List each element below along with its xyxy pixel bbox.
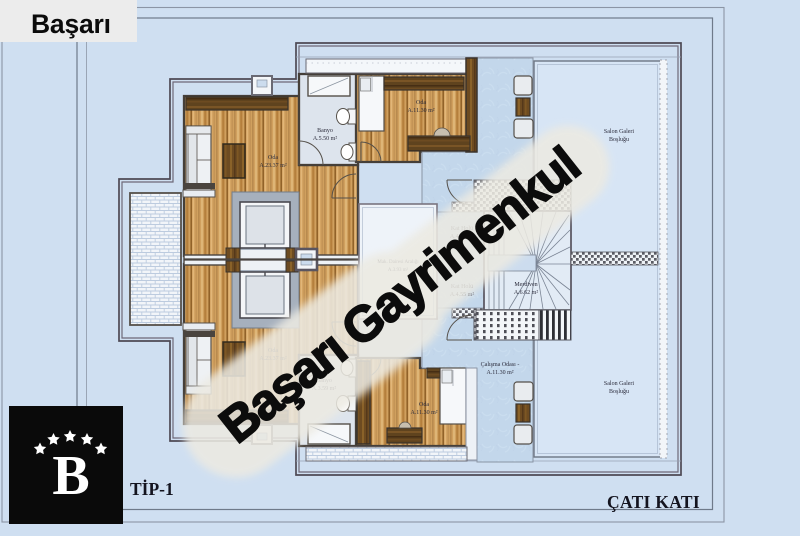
svg-text:ÇATI KATI: ÇATI KATI [607,492,700,512]
svg-text:Banyo: Banyo [317,128,333,134]
svg-text:Başarı: Başarı [31,9,111,39]
svg-text:A.11.30 m²: A.11.30 m² [407,108,434,114]
svg-text:Oda: Oda [416,100,426,106]
svg-text:Merdiven: Merdiven [514,282,537,288]
svg-text:Boşluğu: Boşluğu [609,388,629,395]
svg-text:B: B [52,445,89,507]
svg-text:A.11.30 m²: A.11.30 m² [486,370,513,376]
svg-text:Salon Galeri: Salon Galeri [604,129,634,135]
svg-text:Oda: Oda [419,402,429,408]
svg-text:Oda: Oda [268,155,278,161]
svg-text:Boşluğu: Boşluğu [609,136,629,143]
svg-text:A.23.37 m²: A.23.37 m² [259,163,287,169]
svg-text:A.11.30 m²: A.11.30 m² [410,410,437,416]
svg-text:Çalışma Odası -: Çalışma Odası - [481,362,520,368]
svg-text:A.6.62 m²: A.6.62 m² [514,290,539,296]
svg-text:TİP-1: TİP-1 [130,479,174,499]
svg-text:Salon Galeri: Salon Galeri [604,381,634,387]
svg-text:A.5.50 m²: A.5.50 m² [313,136,338,142]
